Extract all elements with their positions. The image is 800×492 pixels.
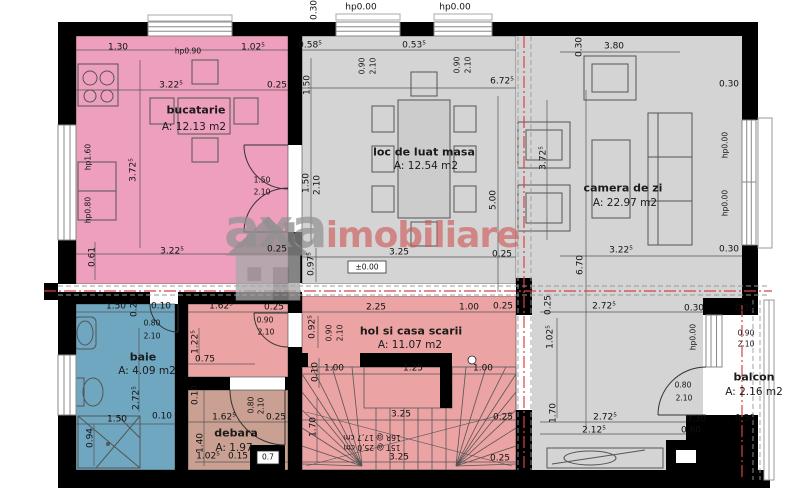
chimney-box bbox=[257, 451, 279, 464]
balcony-window bbox=[706, 315, 722, 367]
room-hol-corridor bbox=[188, 304, 288, 377]
room-bucatarie bbox=[76, 36, 288, 284]
dining-window-2 bbox=[434, 14, 492, 36]
wall-niche bbox=[676, 450, 696, 463]
floorplan-drawing bbox=[0, 0, 800, 492]
kitchen-top-window bbox=[148, 15, 232, 36]
level-marker-box bbox=[348, 261, 386, 273]
floorplan-page: axaimobiliare bucatarieA: 12.13 m2loc de… bbox=[0, 0, 800, 492]
balcony-railing bbox=[764, 300, 774, 480]
bath-left-window bbox=[58, 355, 76, 415]
dining-window-1 bbox=[336, 14, 400, 36]
room-camera-de-zi-upper bbox=[532, 36, 742, 298]
living-right-window bbox=[742, 118, 772, 248]
stair-newel bbox=[468, 356, 476, 364]
kitchen-left-window bbox=[58, 125, 76, 240]
room-baie bbox=[76, 304, 175, 470]
room-hol bbox=[302, 296, 516, 470]
